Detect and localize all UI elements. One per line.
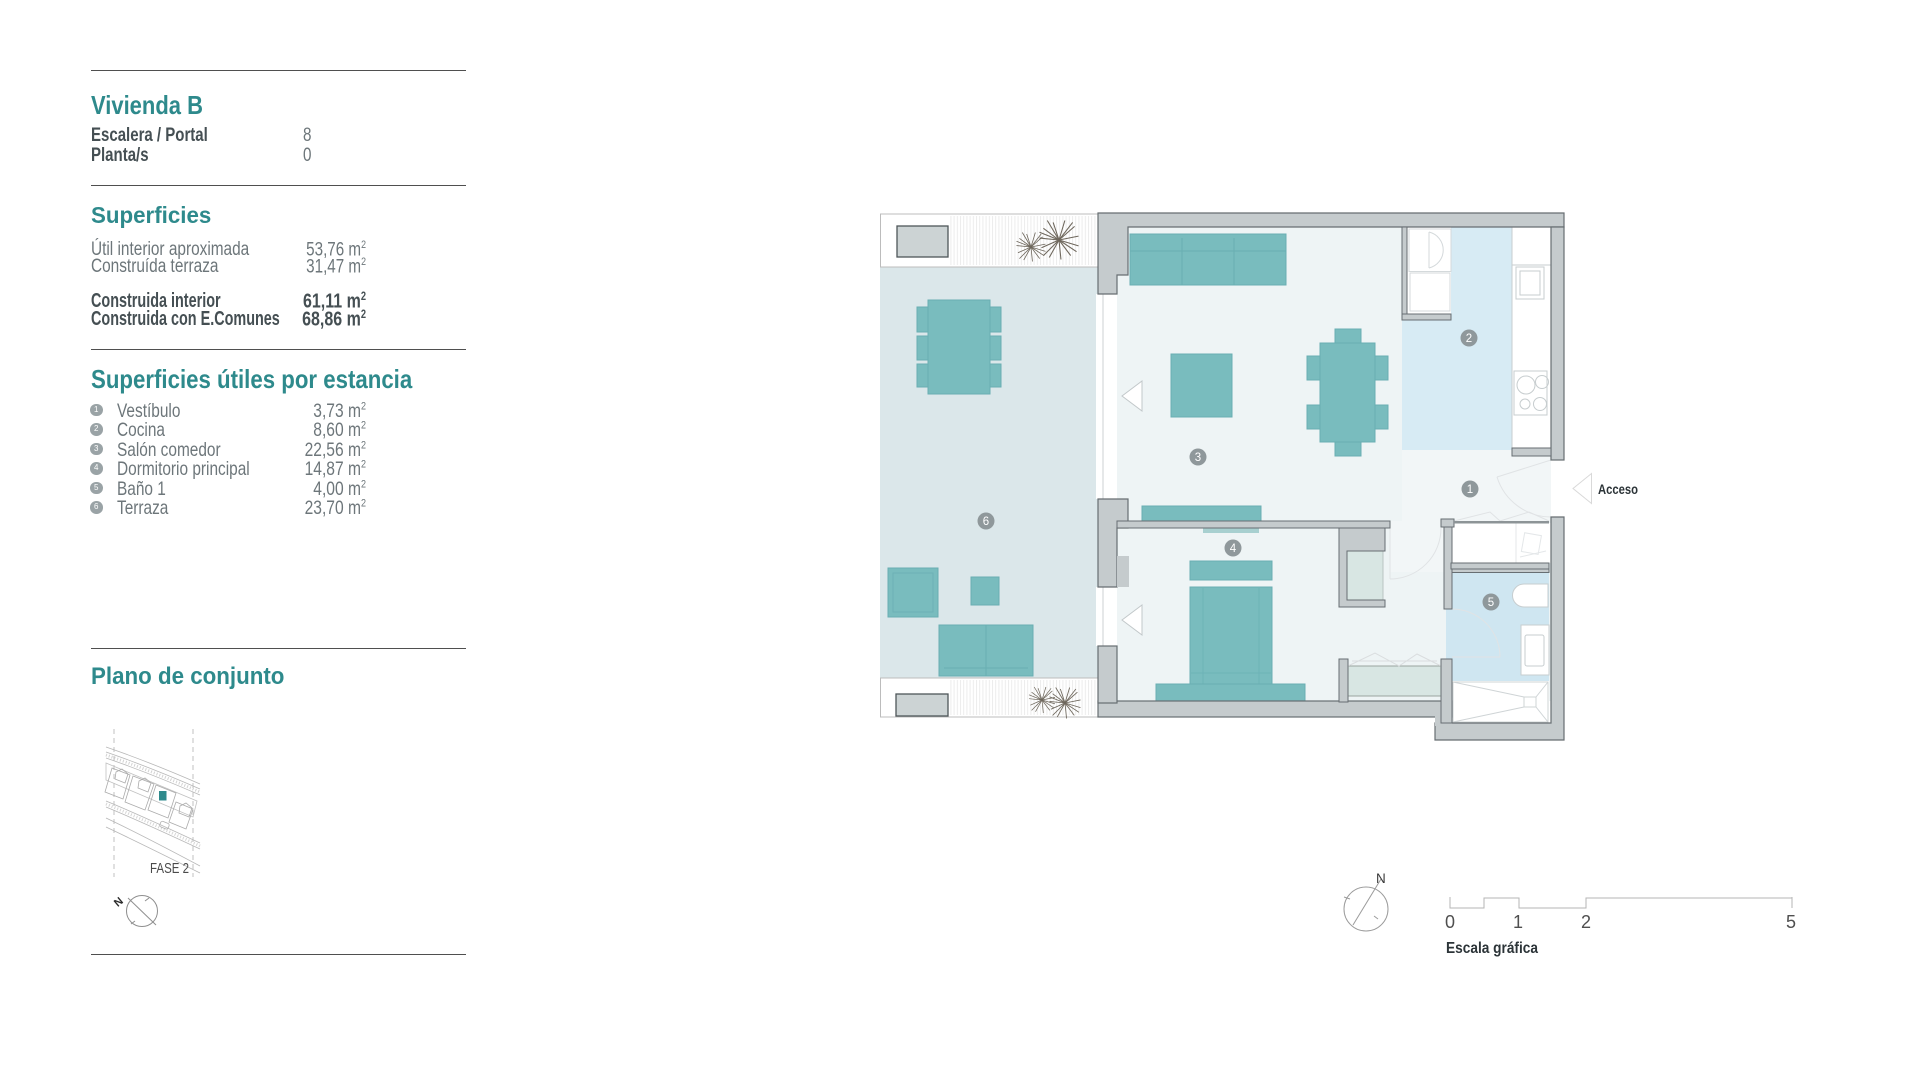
svg-text:3: 3 <box>1195 452 1201 464</box>
svg-text:2: 2 <box>1466 333 1472 345</box>
svg-text:2: 2 <box>1581 912 1591 932</box>
svg-text:1: 1 <box>1513 912 1523 932</box>
svg-text:4: 4 <box>1230 543 1237 555</box>
svg-text:Acceso: Acceso <box>1598 481 1638 497</box>
svg-text:1: 1 <box>1467 484 1473 496</box>
svg-text:0: 0 <box>1445 912 1455 932</box>
svg-text:6: 6 <box>983 516 989 528</box>
svg-text:5: 5 <box>1488 597 1494 609</box>
svg-text:Escala gráfica: Escala gráfica <box>1446 940 1538 957</box>
svg-text:N: N <box>112 895 126 909</box>
svg-text:N: N <box>1376 871 1386 886</box>
svg-text:5: 5 <box>1786 912 1796 932</box>
svg-text:FASE 2: FASE 2 <box>150 860 189 877</box>
